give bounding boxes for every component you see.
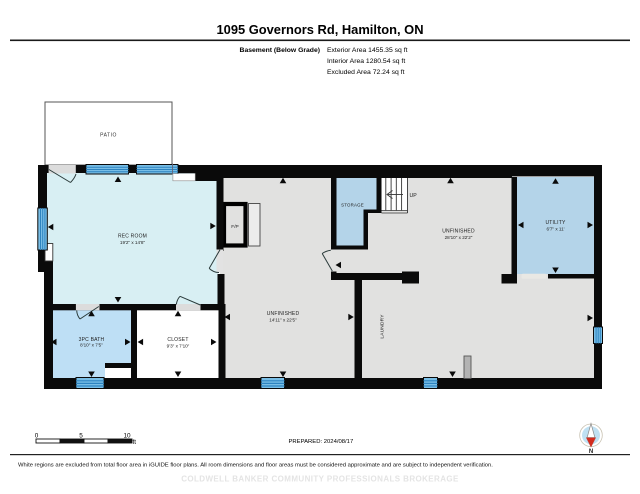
svg-text:14'11" x 22'5": 14'11" x 22'5" — [269, 318, 297, 323]
svg-text:10: 10 — [123, 433, 131, 440]
svg-text:Interior Area 1280.54 sq ft: Interior Area 1280.54 sq ft — [327, 58, 405, 65]
svg-text:COLDWELL BANKER COMMUNITY PROF: COLDWELL BANKER COMMUNITY PROFESSIONALS … — [181, 475, 459, 484]
svg-text:19'2" x 14'8": 19'2" x 14'8" — [120, 240, 146, 245]
svg-text:UTILITY: UTILITY — [545, 220, 565, 226]
svg-text:UNFINISHED: UNFINISHED — [267, 311, 300, 317]
svg-text:PATIO: PATIO — [100, 133, 117, 139]
svg-text:ft: ft — [133, 439, 137, 446]
svg-text:LAUNDRY: LAUNDRY — [380, 314, 386, 339]
svg-text:0: 0 — [35, 433, 39, 440]
svg-text:8'10" x 7'5": 8'10" x 7'5" — [80, 343, 103, 348]
svg-text:28'10" x 22'2": 28'10" x 22'2" — [445, 235, 473, 240]
svg-text:CLOSET: CLOSET — [167, 337, 188, 343]
svg-text:White regions are excluded fro: White regions are excluded from total fl… — [18, 463, 493, 469]
svg-text:5: 5 — [79, 433, 83, 440]
svg-text:REC ROOM: REC ROOM — [118, 234, 147, 240]
svg-text:1095 Governors Rd, Hamilton, O: 1095 Governors Rd, Hamilton, ON — [216, 22, 423, 37]
svg-text:6'7" x 11': 6'7" x 11' — [546, 227, 564, 232]
svg-text:Excluded Area 72.24 sq ft: Excluded Area 72.24 sq ft — [327, 69, 405, 76]
svg-text:N: N — [589, 449, 593, 455]
svg-text:UNFINISHED: UNFINISHED — [442, 229, 475, 235]
svg-text:Exterior Area 1455.35 sq ft: Exterior Area 1455.35 sq ft — [327, 47, 408, 54]
svg-text:UP: UP — [410, 193, 418, 199]
svg-text:Basement (Below Grade): Basement (Below Grade) — [240, 47, 320, 54]
svg-text:STORAGE: STORAGE — [341, 203, 364, 208]
svg-text:9'3" x 7'10": 9'3" x 7'10" — [167, 344, 190, 349]
svg-text:F/P: F/P — [231, 224, 238, 230]
svg-text:PREPARED: 2024/08/17: PREPARED: 2024/08/17 — [289, 439, 354, 445]
